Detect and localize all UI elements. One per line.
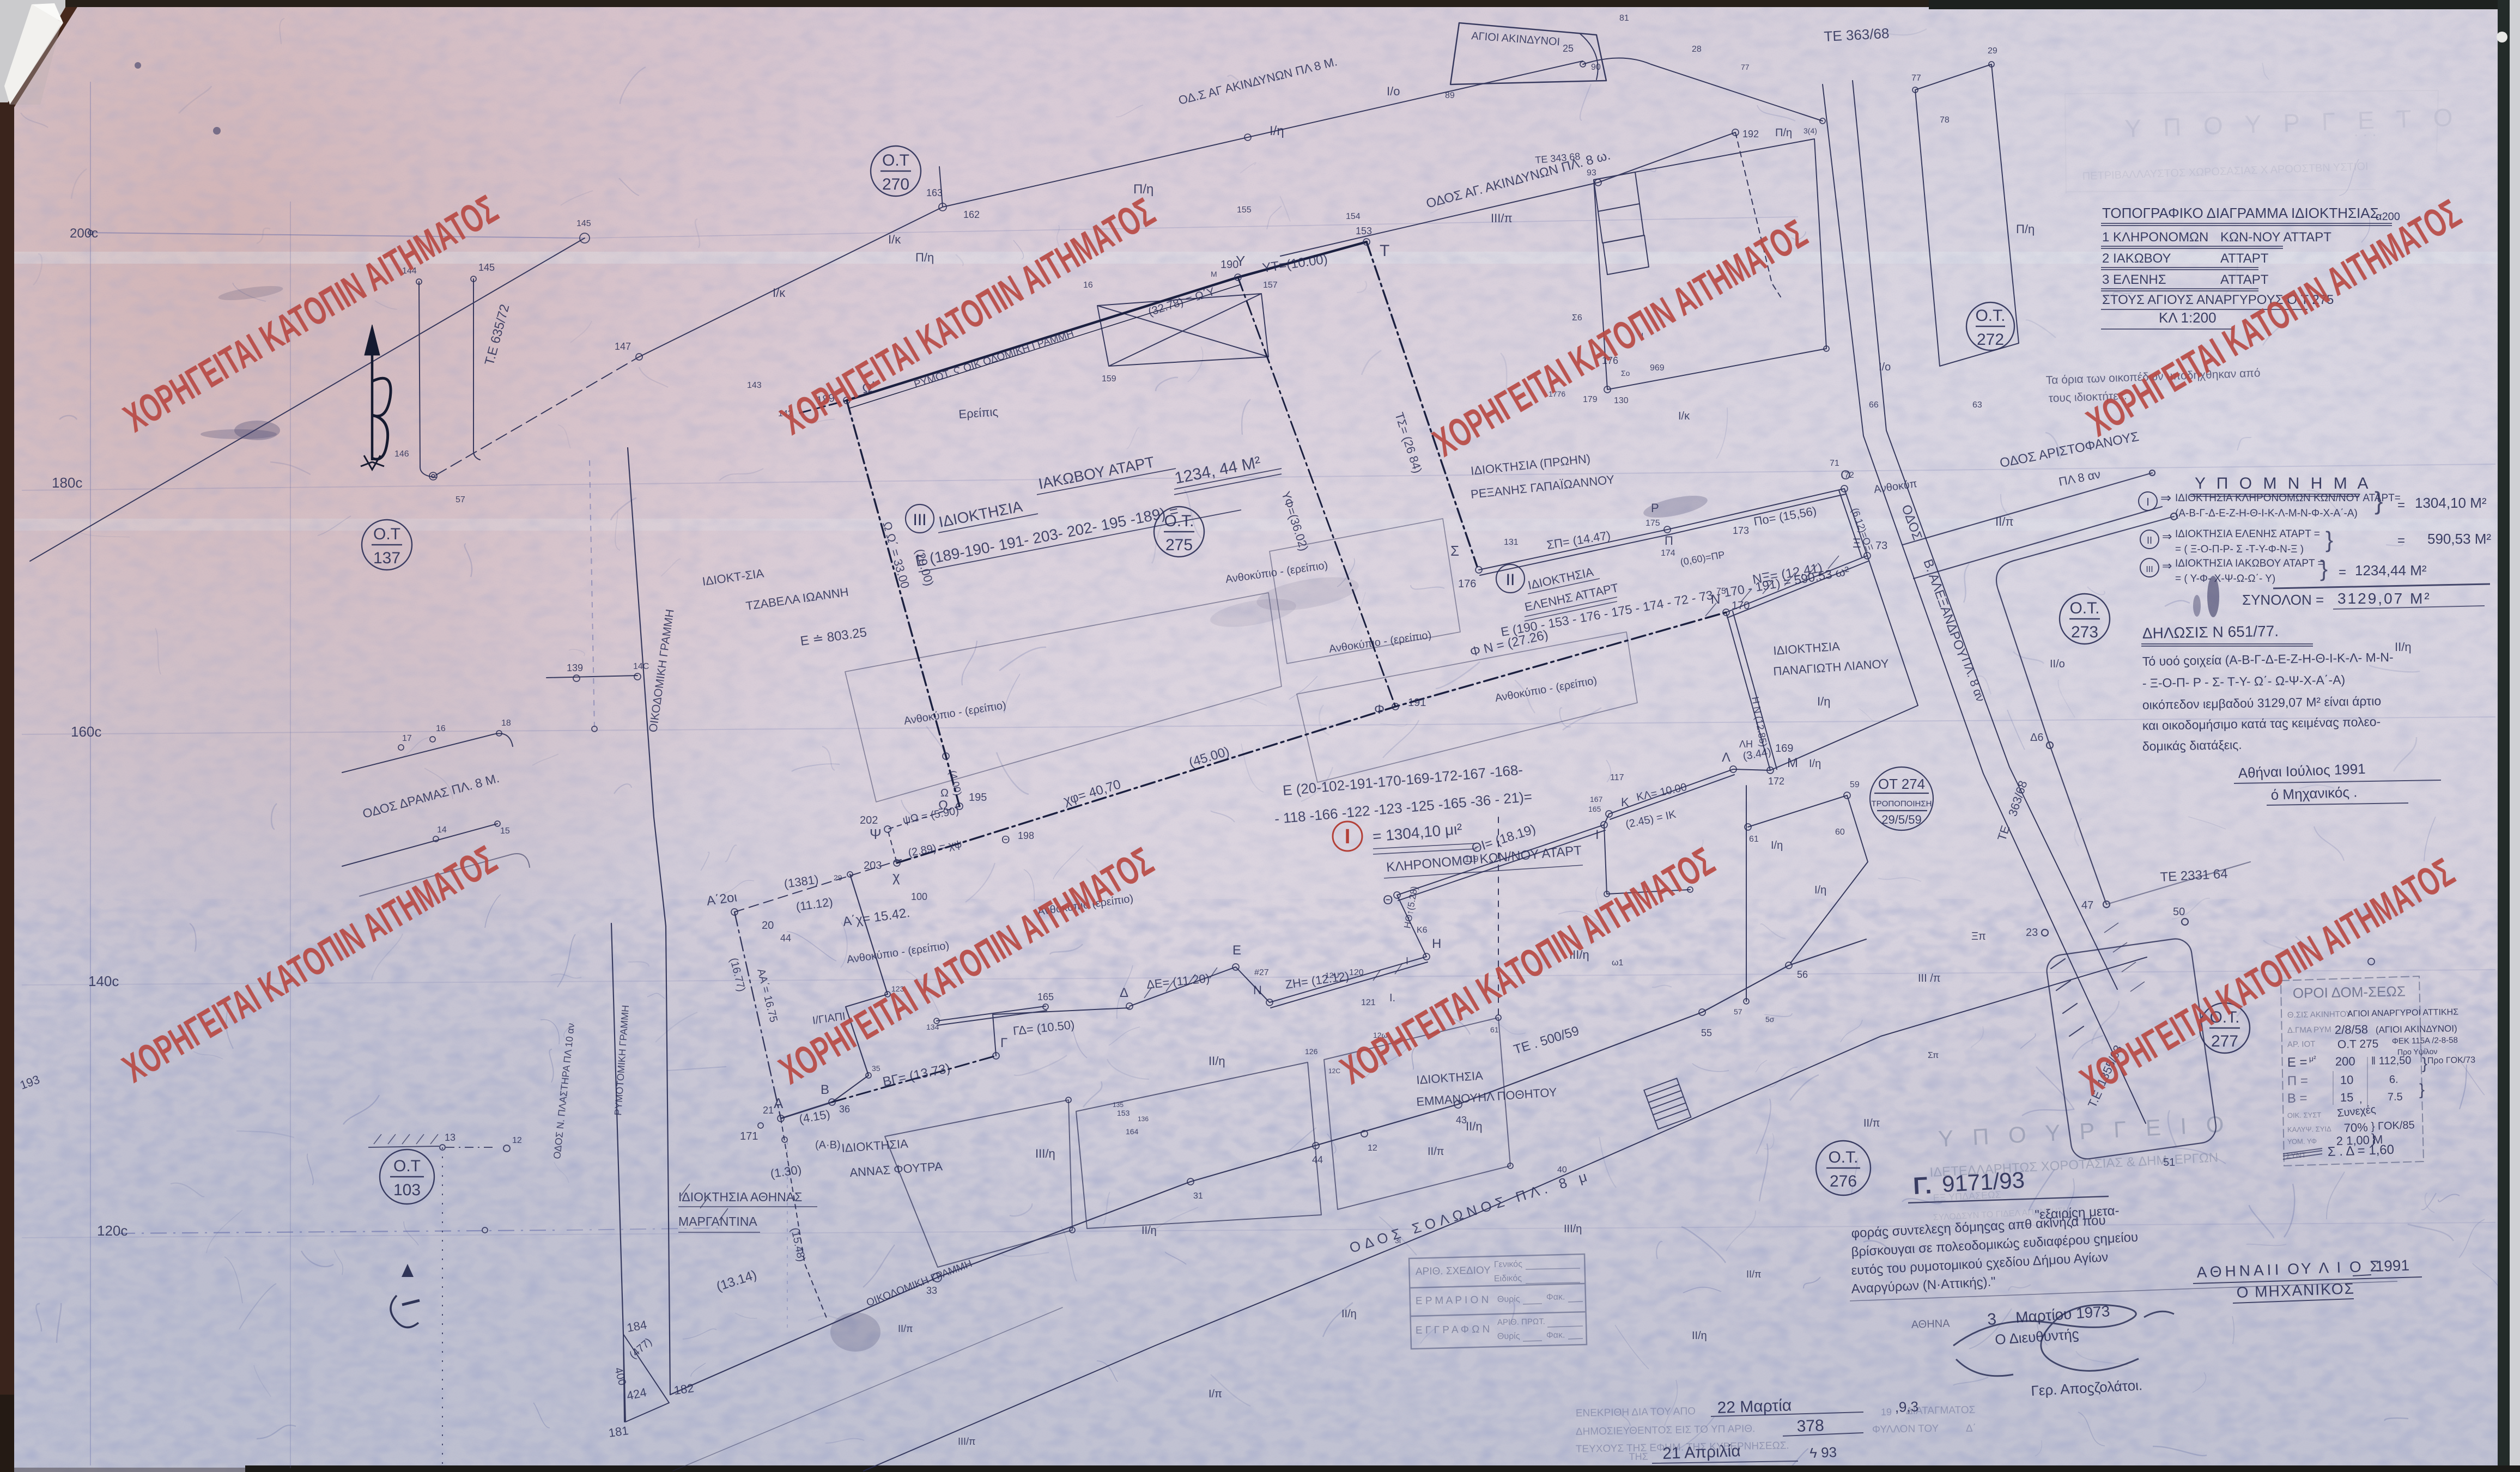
svg-text:Ι/η: Ι/η <box>1814 884 1826 896</box>
svg-text:ΤΡΟΠΟΠΟΙΗΣΗ: ΤΡΟΠΟΠΟΙΗΣΗ <box>1872 799 1932 808</box>
svg-text:ΟΙΚ. ΣΥΣΤ: ΟΙΚ. ΣΥΣΤ <box>2287 1111 2322 1120</box>
svg-text:198: 198 <box>1018 830 1034 841</box>
svg-text:ΤΟΠΟΓΡΑΦΙΚΟ ΔΙΑΓΡΑΜΜΑ ΙΔΙΟΚΤ: ΤΟΠΟΓΡΑΦΙΚΟ ΔΙΑΓΡΑΜΜΑ ΙΔΙΟΚΤΗΣΙΑΣ <box>2102 205 2379 221</box>
svg-text:Φ: Φ <box>1374 702 1385 717</box>
svg-text:162: 162 <box>963 209 980 220</box>
svg-text:77: 77 <box>1911 74 1921 83</box>
svg-text:ΙΔΙΟΚΤΗΣΙΑ ΑΘΗΝΑΣ: ΙΔΙΟΚΤΗΣΙΑ ΑΘΗΝΑΣ <box>678 1190 802 1204</box>
svg-text:119: 119 <box>1465 855 1479 864</box>
svg-text:20: 20 <box>762 920 774 932</box>
svg-text:,9,3: ,9,3 <box>1894 1398 1918 1415</box>
svg-text:(ΑΓΙΟΙ ΑΚΙΝΔΥΝΟΙ): (ΑΓΙΟΙ ΑΚΙΝΔΥΝΟΙ) <box>2376 1023 2457 1035</box>
svg-text:Ι: Ι <box>2146 496 2149 508</box>
svg-text:ΙΙΙ: ΙΙΙ <box>2146 565 2153 574</box>
svg-text:174: 174 <box>1661 549 1675 558</box>
svg-text:130: 130 <box>1614 396 1629 405</box>
svg-text:153: 153 <box>1117 1109 1130 1117</box>
svg-text:175: 175 <box>1645 519 1660 528</box>
svg-text:ό Μηχανικός .: ό Μηχανικός . <box>2270 783 2358 803</box>
svg-text:Π: Π <box>1665 534 1673 548</box>
svg-text:160c: 160c <box>71 723 101 740</box>
svg-text:ΙΙΙ/η: ΙΙΙ/η <box>1035 1147 1055 1160</box>
svg-text:ΑΤΤΑΡΤ: ΑΤΤΑΡΤ <box>2220 251 2269 266</box>
svg-text:Σο: Σο <box>1621 369 1630 378</box>
svg-text:Σ: Σ <box>1450 543 1459 559</box>
svg-text:ΙΙ/η: ΙΙ/η <box>1141 1225 1157 1237</box>
svg-text:60: 60 <box>1835 828 1845 837</box>
svg-text:165: 165 <box>1037 992 1054 1002</box>
svg-text:5σ: 5σ <box>1765 1015 1775 1024</box>
svg-text:173: 173 <box>1733 525 1749 536</box>
svg-text:ΦΕΚ 115Α /2-8-58: ΦΕΚ 115Α /2-8-58 <box>2392 1036 2458 1046</box>
svg-text:172: 172 <box>1768 776 1784 787</box>
svg-text:190: 190 <box>1220 259 1238 271</box>
svg-text:136: 136 <box>1138 1115 1149 1123</box>
svg-text:Ω: Ω <box>938 798 948 813</box>
svg-text:12U: 12U <box>1325 971 1339 980</box>
svg-text:276: 276 <box>1830 1172 1857 1190</box>
svg-text:ΙΙ/η: ΙΙ/η <box>1466 1120 1483 1133</box>
svg-text:Ειδικός: Ειδικός <box>1494 1274 1522 1284</box>
svg-text:Ψ: Ψ <box>870 826 882 842</box>
svg-text:66: 66 <box>1869 400 1879 410</box>
svg-text:Ξπ: Ξπ <box>1971 930 1986 942</box>
svg-text:47: 47 <box>2081 899 2093 911</box>
svg-text:137: 137 <box>373 549 400 567</box>
svg-text:13: 13 <box>445 1132 456 1143</box>
svg-text:,: , <box>2359 1093 2363 1105</box>
svg-text:Ι/η: Ι/η <box>1809 758 1821 770</box>
svg-text:Ω: Ω <box>940 787 949 799</box>
svg-text:16: 16 <box>436 724 446 733</box>
svg-text:57: 57 <box>456 495 465 504</box>
svg-text:ΙΙ/π: ΙΙ/π <box>1746 1269 1761 1280</box>
svg-text:}: } <box>2325 527 2333 552</box>
svg-text:12C: 12C <box>1328 1067 1340 1075</box>
svg-text:Η: Η <box>1432 936 1441 951</box>
svg-text:44: 44 <box>1312 1154 1323 1165</box>
svg-text:Ι/κ: Ι/κ <box>773 286 786 300</box>
svg-text:Ε Ρ Μ Α Ρ Ι Ο Ν: Ε Ρ Μ Α Ρ Ι Ο Ν <box>1416 1294 1489 1307</box>
svg-text:135: 135 <box>1113 1101 1124 1109</box>
svg-text:Ι/κ: Ι/κ <box>888 233 901 246</box>
svg-text:ΚΩΝ-ΝΟΥ ΑΤΤΑΡΤ: ΚΩΝ-ΝΟΥ ΑΤΤΑΡΤ <box>2220 230 2331 245</box>
svg-text:Ι/η: Ι/η <box>1771 840 1783 851</box>
svg-text:31: 31 <box>1193 1191 1203 1201</box>
svg-text:=: = <box>2397 498 2405 513</box>
svg-text:61: 61 <box>1749 835 1759 844</box>
svg-text:117: 117 <box>1610 773 1624 782</box>
svg-text:Ι/κ: Ι/κ <box>1678 410 1690 422</box>
svg-text:179: 179 <box>1583 395 1598 404</box>
svg-text:}: } <box>2320 556 2328 581</box>
svg-text:59: 59 <box>1850 780 1860 789</box>
svg-text:Ο.Τ.: Ο.Τ. <box>1975 307 2005 325</box>
svg-text:ΙΙΙ/π: ΙΙΙ/π <box>1491 211 1513 225</box>
svg-text:ΙΔΙΟΚΤΗΣΙΑ ΕΛΕΝΗΣ ΑΤΑΡΤ =: ΙΔΙΟΚΤΗΣΙΑ ΕΛΕΝΗΣ ΑΤΑΡΤ = <box>2175 528 2320 540</box>
svg-text:15: 15 <box>2340 1091 2354 1104</box>
svg-text:195: 195 <box>969 792 987 804</box>
svg-text:57: 57 <box>1734 1007 1742 1016</box>
svg-text:35: 35 <box>872 1064 881 1073</box>
svg-text:Β =: Β = <box>2287 1091 2308 1106</box>
svg-text:73: 73 <box>1875 540 1887 552</box>
svg-text:167: 167 <box>1590 795 1603 804</box>
svg-text:ΙΙ: ΙΙ <box>2147 535 2152 546</box>
svg-text:Ι.: Ι. <box>1389 992 1395 1004</box>
svg-text:51: 51 <box>2163 1157 2175 1169</box>
svg-text:63: 63 <box>1972 400 1982 410</box>
svg-text:} ΓΟΚ/85: } ΓΟΚ/85 <box>2371 1119 2415 1133</box>
svg-text:ΙΙ/π: ΙΙ/π <box>898 1323 913 1334</box>
svg-text:50: 50 <box>2173 906 2185 918</box>
svg-text:28: 28 <box>1692 45 1702 54</box>
svg-text:1234,44 Μ²: 1234,44 Μ² <box>2355 562 2427 579</box>
svg-text:192: 192 <box>1742 129 1759 139</box>
svg-text:ΑΤΤΑΡΤ: ΑΤΤΑΡΤ <box>2220 272 2269 287</box>
svg-text:δομικάϛ διατάξεις.: δομικάϛ διατάξεις. <box>2142 738 2242 753</box>
svg-text:22 Μαρτία: 22 Μαρτία <box>1717 1396 1792 1417</box>
svg-text:Μ: Μ <box>1211 270 1217 278</box>
svg-text:275: 275 <box>1165 536 1193 554</box>
svg-text:ΦΥΛΛΟΝ ΤΟΥ: ΦΥΛΛΟΝ ΤΟΥ <box>1872 1423 1939 1435</box>
svg-text:29: 29 <box>834 873 842 882</box>
svg-text:270: 270 <box>882 175 909 193</box>
svg-text:ΙΙ: ΙΙ <box>1506 571 1515 589</box>
svg-text:ΙΙ/η: ΙΙ/η <box>1209 1054 1225 1068</box>
svg-text:89: 89 <box>1445 91 1455 100</box>
svg-text:ΙΔΙΟΚΤΗΣΙΑ ΙΑΚΩΒΟΥ ΑΤΑΡΤ =: ΙΔΙΟΚΤΗΣΙΑ ΙΑΚΩΒΟΥ ΑΤΑΡΤ = <box>2175 558 2324 569</box>
svg-text:1991: 1991 <box>2375 1257 2409 1275</box>
svg-text:Ο.Τ: Ο.Τ <box>393 1157 421 1175</box>
svg-text:171: 171 <box>740 1130 758 1142</box>
svg-text:131: 131 <box>1504 538 1519 547</box>
svg-text:Ο.Τ.: Ο.Τ. <box>1828 1148 1858 1166</box>
svg-text:164: 164 <box>1126 1127 1139 1136</box>
svg-text:ΤΗΣ: ΤΗΣ <box>1629 1451 1648 1462</box>
svg-text:Ι: Ι <box>1406 956 1408 966</box>
svg-text:203: 203 <box>864 860 882 872</box>
svg-text:Ι/η: Ι/η <box>1817 695 1830 708</box>
svg-text:120: 120 <box>1349 968 1364 977</box>
svg-text:21 Απριλία: 21 Απριλία <box>1662 1442 1741 1463</box>
svg-text:145: 145 <box>478 262 495 273</box>
svg-text:χ: χ <box>892 868 900 885</box>
svg-text:(Α-Β-Γ-Δ-Ε-Ζ-Η-Θ-Ι-Κ-Λ-Μ-Ν-Φ-Χ: (Α-Β-Γ-Δ-Ε-Ζ-Η-Θ-Ι-Κ-Λ-Μ-Ν-Φ-Χ-Α΄-Α) <box>2175 508 2358 519</box>
svg-text:Φακ.: Φακ. <box>1546 1292 1565 1302</box>
svg-text:277: 277 <box>2211 1032 2238 1050</box>
svg-text:ΚΛ 1:200: ΚΛ 1:200 <box>2159 309 2217 326</box>
svg-text:ϟ 93: ϟ 93 <box>1809 1444 1837 1461</box>
svg-text:ω1: ω1 <box>1612 958 1623 968</box>
svg-text:163: 163 <box>926 187 943 198</box>
svg-text:Λ: Λ <box>1722 750 1730 765</box>
svg-text:273: 273 <box>2071 623 2098 641</box>
svg-text:23: 23 <box>2026 927 2038 939</box>
svg-text:16: 16 <box>1083 281 1093 290</box>
svg-text:1 ΚΛΗΡΟΝΟΜΩΝ: 1 ΚΛΗΡΟΝΟΜΩΝ <box>2102 230 2208 245</box>
svg-text:18: 18 <box>501 719 511 728</box>
svg-text:191: 191 <box>1408 697 1426 709</box>
svg-text:145: 145 <box>576 219 591 228</box>
svg-text:ΙΙ/η: ΙΙ/η <box>2395 640 2412 654</box>
svg-text:Ι/π: Ι/π <box>1209 1388 1222 1400</box>
svg-text:Ε Γ Γ Ρ Α Φ Ω Ν: Ε Γ Γ Ρ Α Φ Ω Ν <box>1416 1324 1490 1336</box>
svg-text:10: 10 <box>2340 1073 2354 1087</box>
svg-text:Κ: Κ <box>1621 795 1629 809</box>
svg-text:181: 181 <box>608 1424 629 1440</box>
svg-text:9171/93: 9171/93 <box>1941 1167 2025 1197</box>
svg-text:Σ6: Σ6 <box>1572 313 1582 323</box>
svg-text:969: 969 <box>1650 363 1665 373</box>
svg-text:Π/η: Π/η <box>915 251 934 264</box>
svg-text:120c: 120c <box>97 1222 127 1239</box>
svg-text:12: 12 <box>1368 1143 1377 1153</box>
svg-text:55: 55 <box>1701 1027 1712 1038</box>
svg-text:147: 147 <box>615 341 631 352</box>
svg-text:ΑΓΙΟΙ ΑΝΑΡΓΥΡΟΙ ΑΤΤΙΚΗΣ: ΑΓΙΟΙ ΑΝΑΡΓΥΡΟΙ ΑΤΤΙΚΗΣ <box>2347 1007 2459 1019</box>
svg-text:3ι: 3ι <box>1395 1236 1401 1245</box>
svg-text:Δ: Δ <box>1120 986 1128 1000</box>
svg-text:Δ.ΓΜΑ ΡΥΜ: Δ.ΓΜΑ ΡΥΜ <box>2287 1025 2331 1035</box>
svg-text:29/5/59: 29/5/59 <box>1881 813 1921 826</box>
svg-text:ΥΟΜ. ΥΦ: ΥΟΜ. ΥΦ <box>2287 1137 2317 1146</box>
svg-text:Β: Β <box>821 1082 829 1097</box>
svg-text:Π =: Π = <box>2287 1073 2308 1088</box>
svg-text:40: 40 <box>1557 1165 1567 1175</box>
svg-text:Κ6: Κ6 <box>1417 926 1428 935</box>
svg-text:ΙΙΙ: ΙΙΙ <box>913 511 926 529</box>
svg-text:Γενικός: Γενικός <box>1494 1260 1522 1269</box>
svg-text:2/8/58: 2/8/58 <box>2335 1023 2369 1037</box>
svg-text:72: 72 <box>1844 471 1854 480</box>
svg-text:Δ΄: Δ΄ <box>1966 1423 1976 1434</box>
svg-text:ΙΔΙΟΚΤΗΣΙΑ ΚΛΗΡΟΝΟΜΩΝ ΚΩΝ/ΝΟ: ΙΔΙΟΚΤΗΣΙΑ ΚΛΗΡΟΝΟΜΩΝ ΚΩΝ/ΝΟΥ ΑΤΑΡΤ= <box>2175 492 2401 504</box>
svg-text:Ι/η: Ι/η <box>1270 124 1284 138</box>
svg-text:Θ.ΣΙΣ ΑΚΙΝΗΤΟΥ: Θ.ΣΙΣ ΑΚΙΝΗΤΟΥ <box>2287 1009 2352 1020</box>
svg-text:154: 154 <box>1346 212 1361 221</box>
svg-text:Ι: Ι <box>1595 828 1599 842</box>
svg-text:Ι: Ι <box>1345 825 1351 848</box>
svg-text:Προ ΓΟΚ/73: Προ ΓΟΚ/73 <box>2427 1055 2476 1066</box>
svg-text:200: 200 <box>2335 1054 2355 1068</box>
svg-text:157: 157 <box>1263 281 1278 290</box>
svg-text:7.5: 7.5 <box>2388 1091 2403 1103</box>
svg-text:Ν: Ν <box>1253 983 1262 997</box>
svg-text:ΙΙΙ/π: ΙΙΙ/π <box>958 1436 975 1447</box>
svg-text:Θυρίς: Θυρίς <box>1497 1331 1520 1341</box>
svg-text:= ( Υ-Φ- Χ-Ψ-Ω-Ω΄- Υ): = ( Υ-Φ- Χ-Ψ-Ω-Ω΄- Υ) <box>2175 573 2275 585</box>
svg-text:= ( Ξ-Ο-Π-Ρ- Σ -Τ-Υ-Φ-Ν-Ξ ): = ( Ξ-Ο-Π-Ρ- Σ -Τ-Υ-Φ-Ν-Ξ ) <box>2175 544 2304 555</box>
svg-text:Γ.: Γ. <box>1912 1172 1932 1200</box>
svg-text:36: 36 <box>839 1104 850 1115</box>
svg-text:25: 25 <box>1563 43 1574 54</box>
svg-text:Ο.Τ.: Ο.Τ. <box>2069 599 2099 617</box>
svg-text:#27: #27 <box>1254 968 1269 977</box>
svg-text:378: 378 <box>1796 1416 1824 1435</box>
svg-text:Α: Α <box>774 1095 784 1111</box>
svg-text:‖ 112,50: ‖ 112,50 <box>2371 1055 2412 1067</box>
svg-text:}: } <box>2422 1055 2427 1073</box>
svg-text:143: 143 <box>747 381 762 390</box>
svg-text:Ε =: Ε = <box>2287 1055 2308 1070</box>
svg-text:159: 159 <box>1102 374 1116 384</box>
svg-text:Ο.Τ: Ο.Τ <box>373 525 400 543</box>
svg-text:200c: 200c <box>70 226 98 241</box>
svg-text:56: 56 <box>1797 969 1808 980</box>
svg-text:ΙΙ/ο: ΙΙ/ο <box>2050 658 2065 670</box>
svg-text:43: 43 <box>1456 1115 1467 1126</box>
svg-text:ΛΗ: ΛΗ <box>1739 739 1753 750</box>
svg-text:ΟΡΟΙ ΔΟΜ-ΣΕΩΣ: ΟΡΟΙ ΔΟΜ-ΣΕΩΣ <box>2293 983 2406 1001</box>
svg-text:ΙΙΙ /π: ΙΙΙ /π <box>1918 972 1941 984</box>
svg-text:29: 29 <box>1988 46 1997 56</box>
svg-text:Ο.Τ 275: Ο.Τ 275 <box>2337 1038 2379 1051</box>
svg-text:ΣΥΝΟΛΟΝ =: ΣΥΝΟΛΟΝ = <box>2242 592 2324 608</box>
svg-text:ΙΙ/η: ΙΙ/η <box>1692 1330 1707 1342</box>
svg-text:Δ6: Δ6 <box>2030 732 2043 744</box>
svg-text:ΑΘΗΝΑ: ΑΘΗΝΑ <box>1911 1318 1950 1331</box>
svg-text:93: 93 <box>1587 168 1596 178</box>
svg-text:134: 134 <box>926 1023 939 1031</box>
svg-text:Ι/ο: Ι/ο <box>1387 84 1400 98</box>
svg-text:ΕΝΕΚΡΙΘΗ ΔΙΑ ΤΟΥ ΑΠΟ: ΕΝΕΚΡΙΘΗ ΔΙΑ ΤΟΥ ΑΠΟ <box>1576 1406 1696 1419</box>
svg-text:ΑΘΗΝΑΙ: ΑΘΗΝΑΙ <box>2196 1261 2275 1281</box>
svg-text:170: 170 <box>1732 600 1750 612</box>
svg-text:ΙΙ/η: ΙΙ/η <box>1341 1308 1357 1320</box>
svg-text:17: 17 <box>402 734 412 743</box>
svg-text:44: 44 <box>780 933 791 944</box>
svg-text:. . .: . . . <box>2354 122 2377 140</box>
svg-text:Φακ.: Φακ. <box>1546 1330 1565 1340</box>
svg-text:61: 61 <box>1490 1025 1499 1034</box>
svg-text:103: 103 <box>393 1181 421 1199</box>
svg-text:15: 15 <box>500 826 510 836</box>
svg-text:ΑΡ. ΙΟΤ: ΑΡ. ΙΟΤ <box>2287 1039 2316 1049</box>
svg-text:⇒: ⇒ <box>2160 491 2171 506</box>
svg-text:165: 165 <box>1588 805 1601 813</box>
svg-text:140c: 140c <box>88 973 119 989</box>
svg-text:3 ΕΛΕΝΗΣ: 3 ΕΛΕΝΗΣ <box>2102 272 2166 287</box>
svg-text:Μ: Μ <box>1787 756 1798 770</box>
svg-text:ΔΗΛΩΣΙΣ Ν 651/77.: ΔΗΛΩΣΙΣ Ν 651/77. <box>2142 623 2279 642</box>
svg-text:155: 155 <box>1237 205 1252 215</box>
svg-text:21: 21 <box>763 1105 774 1116</box>
svg-text:12: 12 <box>512 1136 522 1145</box>
svg-text:Π/η: Π/η <box>1775 127 1792 139</box>
svg-text:Ι/ο: Ι/ο <box>1879 361 1891 373</box>
svg-text:77: 77 <box>1741 63 1750 71</box>
svg-text:Σπ: Σπ <box>1928 1051 1939 1060</box>
svg-text:ΤΕ 363/68: ΤΕ 363/68 <box>1824 25 1890 45</box>
svg-text:Π/η: Π/η <box>2016 222 2035 236</box>
svg-text:Τ: Τ <box>1380 242 1389 260</box>
svg-text:Θ: Θ <box>1001 834 1010 846</box>
svg-text:Θ: Θ <box>1383 893 1393 908</box>
svg-text:Θυρίς: Θυρίς <box>1497 1294 1520 1304</box>
svg-text:Ερείπις: Ερείπις <box>958 405 999 421</box>
svg-text:ΙΙ/π: ΙΙ/π <box>1428 1146 1444 1158</box>
svg-text:121: 121 <box>1361 998 1376 1007</box>
svg-text:μ²: μ² <box>2309 1054 2316 1063</box>
svg-text:33: 33 <box>926 1285 937 1296</box>
svg-text:Ο.Τ: Ο.Τ <box>882 151 909 169</box>
svg-text:Υ Π Ο Μ Ν Η Μ Α: Υ Π Ο Μ Ν Η Μ Α <box>2195 475 2371 492</box>
svg-text:}: } <box>2375 486 2383 515</box>
svg-text:⇒: ⇒ <box>2162 530 2172 543</box>
svg-text:100: 100 <box>911 891 927 902</box>
svg-text:146: 146 <box>394 449 409 459</box>
svg-text:Σ . Δ = 1,60: Σ . Δ = 1,60 <box>2327 1142 2394 1159</box>
svg-text:}: } <box>2419 1081 2425 1099</box>
svg-text:153: 153 <box>1356 226 1372 236</box>
svg-text:=: = <box>2397 533 2405 548</box>
svg-text:1304,10 Μ²: 1304,10 Μ² <box>2415 495 2487 511</box>
svg-text:75: 75 <box>1716 587 1726 596</box>
svg-text:ΙΙ/π: ΙΙ/π <box>1863 1117 1880 1129</box>
svg-text:6.: 6. <box>2389 1074 2398 1086</box>
svg-text:⇒: ⇒ <box>2162 559 2172 573</box>
svg-text:71: 71 <box>1830 459 1839 468</box>
svg-text:590,53 Μ²: 590,53 Μ² <box>2427 531 2491 547</box>
svg-text:ΟΤ 274: ΟΤ 274 <box>1878 776 1925 792</box>
svg-text:272: 272 <box>1977 331 2004 349</box>
svg-text:90: 90 <box>1591 63 1601 72</box>
svg-text:14: 14 <box>437 825 447 835</box>
svg-text:70%: 70% <box>2343 1120 2368 1135</box>
svg-text:3129,07 Μ²: 3129,07 Μ² <box>2337 590 2431 607</box>
svg-text:ΑΡΙΘ. ΣΧΕΔΙΟΥ: ΑΡΙΘ. ΣΧΕΔΙΟΥ <box>1416 1265 1491 1278</box>
svg-text:202: 202 <box>860 814 878 826</box>
svg-text:139: 139 <box>567 662 583 673</box>
svg-text:ΜΑΡΓΑΝΤΙΝΑ: ΜΑΡΓΑΝΤΙΝΑ <box>678 1214 757 1228</box>
svg-text:Ε: Ε <box>1232 943 1241 958</box>
svg-text:ΑΡΙΘ. ΠΡΩΤ.: ΑΡΙΘ. ΠΡΩΤ. <box>1497 1317 1545 1327</box>
svg-text:=: = <box>2339 565 2346 580</box>
svg-text:19: 19 <box>1881 1407 1892 1418</box>
svg-text:176: 176 <box>1458 578 1476 590</box>
svg-text:14C: 14C <box>633 662 649 671</box>
svg-text:180c: 180c <box>52 475 82 491</box>
svg-text:2 ΙΑΚΩΒΟΥ: 2 ΙΑΚΩΒΟΥ <box>2102 251 2171 266</box>
svg-text:3(4): 3(4) <box>1804 126 1817 135</box>
svg-text:126: 126 <box>1305 1047 1318 1056</box>
svg-text:182: 182 <box>673 1381 695 1397</box>
svg-text:ΚΑΛΥΨ. ΣΥΙΔ: ΚΑΛΥΨ. ΣΥΙΔ <box>2287 1125 2331 1134</box>
svg-text:169: 169 <box>1775 743 1793 755</box>
svg-text:ΙΙΙ/η: ΙΙΙ/η <box>1564 1223 1582 1235</box>
svg-text:78: 78 <box>1940 115 1950 125</box>
svg-text:(Α·Β): (Α·Β) <box>815 1139 841 1151</box>
svg-text:Γ: Γ <box>1000 1036 1007 1050</box>
svg-text:81: 81 <box>1619 14 1629 23</box>
